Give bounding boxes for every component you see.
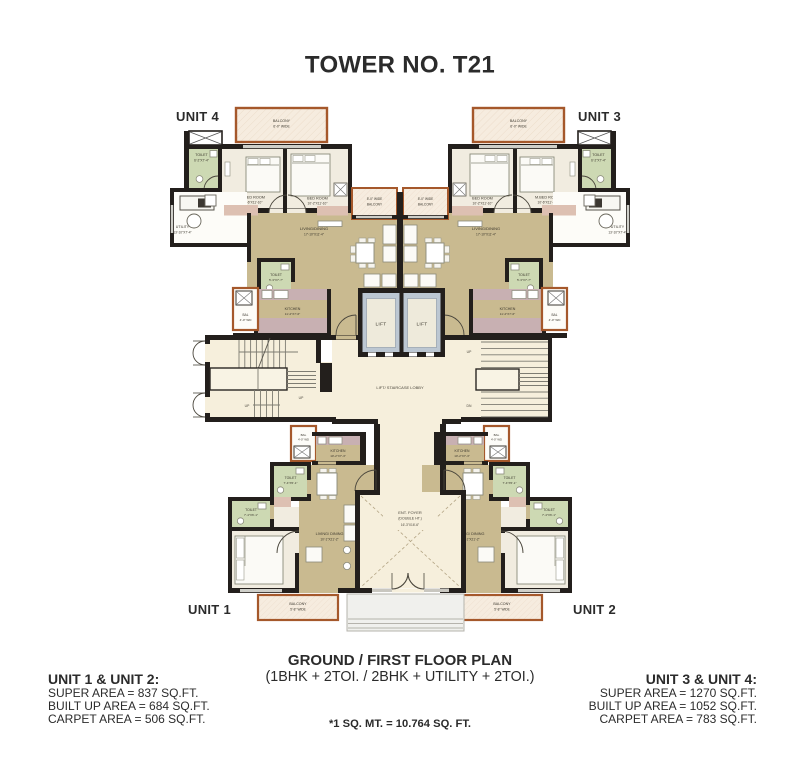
svg-text:BAL: BAL (301, 433, 307, 437)
svg-text:TOILET: TOILET (245, 508, 257, 512)
svg-text:LIVING/ DINING: LIVING/ DINING (316, 532, 344, 536)
svg-text:6'-0" WIDE: 6'-0" WIDE (273, 125, 290, 129)
svg-text:BALCONY: BALCONY (289, 602, 307, 606)
svg-text:BALCONY: BALCONY (510, 119, 528, 123)
svg-text:LIFT/ STAIRCASE LOBBY: LIFT/ STAIRCASE LOBBY (376, 385, 424, 390)
svg-text:10'-2"X11'-10": 10'-2"X11'-10" (308, 202, 328, 206)
svg-text:(1BHK + 2TOI. / 2BHK + UTILITY: (1BHK + 2TOI. / 2BHK + UTILITY + 2TOI.) (266, 669, 535, 685)
svg-text:CARPET AREA = 783 SQ.FT.: CARPET AREA = 783 SQ.FT. (599, 712, 757, 726)
svg-text:LIFT: LIFT (416, 322, 427, 328)
svg-text:BAL: BAL (242, 313, 248, 317)
svg-text:5'-3"X7'-7": 5'-3"X7'-7" (269, 278, 283, 282)
svg-text:BAL: BAL (494, 433, 500, 437)
svg-text:TOILET: TOILET (504, 476, 516, 480)
svg-text:TOWER NO. T21: TOWER NO. T21 (305, 52, 495, 79)
svg-text:BUILT UP AREA = 684 SQ.FT.: BUILT UP AREA = 684 SQ.FT. (48, 699, 210, 713)
svg-text:UNIT 1 & UNIT 2:: UNIT 1 & UNIT 2: (48, 671, 159, 687)
svg-text:5'-8" WIDE: 5'-8" WIDE (494, 608, 510, 612)
svg-text:4'-0" WD: 4'-0" WD (549, 318, 562, 322)
svg-text:TOILET: TOILET (543, 508, 555, 512)
svg-text:11'-2"X7'-6": 11'-2"X7'-6" (285, 312, 300, 316)
svg-text:(DOUBLE HT.): (DOUBLE HT.) (398, 517, 422, 521)
svg-text:KITCHEN: KITCHEN (285, 307, 301, 311)
svg-text:7'-4"X5'-1": 7'-4"X5'-1" (284, 481, 298, 485)
svg-text:ENT. FOYER: ENT. FOYER (398, 510, 422, 515)
svg-text:LIFT: LIFT (375, 322, 386, 328)
svg-text:10'-2"X7'-3": 10'-2"X7'-3" (454, 454, 470, 458)
svg-text:5'-0" WIDE: 5'-0" WIDE (418, 197, 434, 201)
svg-text:BAL: BAL (551, 313, 557, 317)
svg-text:KITCHEN: KITCHEN (455, 449, 470, 453)
svg-text:13'-10"X7'-4": 13'-10"X7'-4" (608, 231, 626, 235)
svg-text:TOILET: TOILET (592, 153, 605, 157)
svg-text:11'-2"X7'-6": 11'-2"X7'-6" (500, 312, 515, 316)
svg-text:7'-4"X6'-1": 7'-4"X6'-1" (542, 513, 556, 517)
svg-text:UNIT 1: UNIT 1 (188, 602, 231, 617)
svg-text:7'-4"X6'-1": 7'-4"X6'-1" (244, 513, 258, 517)
svg-text:UNIT 2: UNIT 2 (573, 602, 616, 617)
svg-text:BALCONY: BALCONY (273, 119, 291, 123)
svg-text:7'-4"X5'-1": 7'-4"X5'-1" (503, 481, 517, 485)
svg-text:UP: UP (467, 350, 472, 354)
svg-text:TOILET: TOILET (195, 153, 208, 157)
svg-text:4'-0" WD: 4'-0" WD (491, 438, 502, 442)
svg-text:UP: UP (299, 396, 304, 400)
svg-text:10'-2"X11'-10": 10'-2"X11'-10" (473, 202, 493, 206)
svg-text:BALCONY: BALCONY (418, 203, 434, 207)
svg-text:6'-2"X7'-4": 6'-2"X7'-4" (591, 159, 606, 163)
svg-text:UP: UP (245, 404, 250, 408)
svg-text:SUPER AREA = 837 SQ.FT.: SUPER AREA = 837 SQ.FT. (48, 686, 198, 700)
svg-text:5'-0" WIDE: 5'-0" WIDE (367, 197, 383, 201)
svg-text:CARPET AREA = 506 SQ.FT.: CARPET AREA = 506 SQ.FT. (48, 712, 206, 726)
svg-text:6'-0" WIDE: 6'-0" WIDE (510, 125, 527, 129)
svg-text:17'-10"X11'-4": 17'-10"X11'-4" (476, 233, 496, 237)
svg-text:UTILITY: UTILITY (176, 225, 190, 229)
svg-text:GROUND / FIRST FLOOR PLAN: GROUND / FIRST FLOOR PLAN (288, 652, 512, 669)
svg-text:16'-3"X16'-6": 16'-3"X16'-6" (401, 523, 419, 527)
svg-text:10'-1"X21'-2": 10'-1"X21'-2" (320, 538, 338, 542)
svg-text:DN: DN (467, 404, 472, 408)
svg-text:UTILITY: UTILITY (611, 225, 625, 229)
svg-text:UNIT 3 & UNIT 4:: UNIT 3 & UNIT 4: (646, 671, 757, 687)
svg-text:BALCONY: BALCONY (367, 203, 383, 207)
svg-text:5'-8" WIDE: 5'-8" WIDE (290, 608, 306, 612)
svg-text:4'-0" WD: 4'-0" WD (298, 438, 309, 442)
svg-text:UNIT 4: UNIT 4 (176, 109, 219, 124)
svg-text:4'-0" WD: 4'-0" WD (240, 318, 253, 322)
svg-text:SUPER AREA = 1270 SQ.FT.: SUPER AREA = 1270 SQ.FT. (600, 686, 757, 700)
svg-text:BALCONY: BALCONY (493, 602, 511, 606)
svg-text:BED ROOM: BED ROOM (472, 197, 493, 201)
svg-text:TOILET: TOILET (518, 273, 530, 277)
svg-text:UNIT 3: UNIT 3 (578, 109, 621, 124)
svg-text:17'-10"X11'-4": 17'-10"X11'-4" (304, 233, 324, 237)
svg-text:6'-2"X7'-4": 6'-2"X7'-4" (194, 159, 209, 163)
svg-text:10'-2"X7'-3": 10'-2"X7'-3" (330, 454, 346, 458)
svg-text:KITCHEN: KITCHEN (500, 307, 516, 311)
svg-text:BUILT UP AREA = 1052 SQ.FT.: BUILT UP AREA = 1052 SQ.FT. (589, 699, 757, 713)
svg-text:13'-10"X7'-4": 13'-10"X7'-4" (173, 231, 191, 235)
svg-text:*1 SQ. MT. = 10.764 SQ. FT.: *1 SQ. MT. = 10.764 SQ. FT. (329, 718, 471, 730)
svg-text:TOILET: TOILET (285, 476, 297, 480)
svg-text:KITCHEN: KITCHEN (331, 449, 346, 453)
svg-text:5'-3"X7'-7": 5'-3"X7'-7" (517, 278, 531, 282)
svg-text:BED ROOM: BED ROOM (307, 197, 328, 201)
svg-text:TOILET: TOILET (270, 273, 282, 277)
